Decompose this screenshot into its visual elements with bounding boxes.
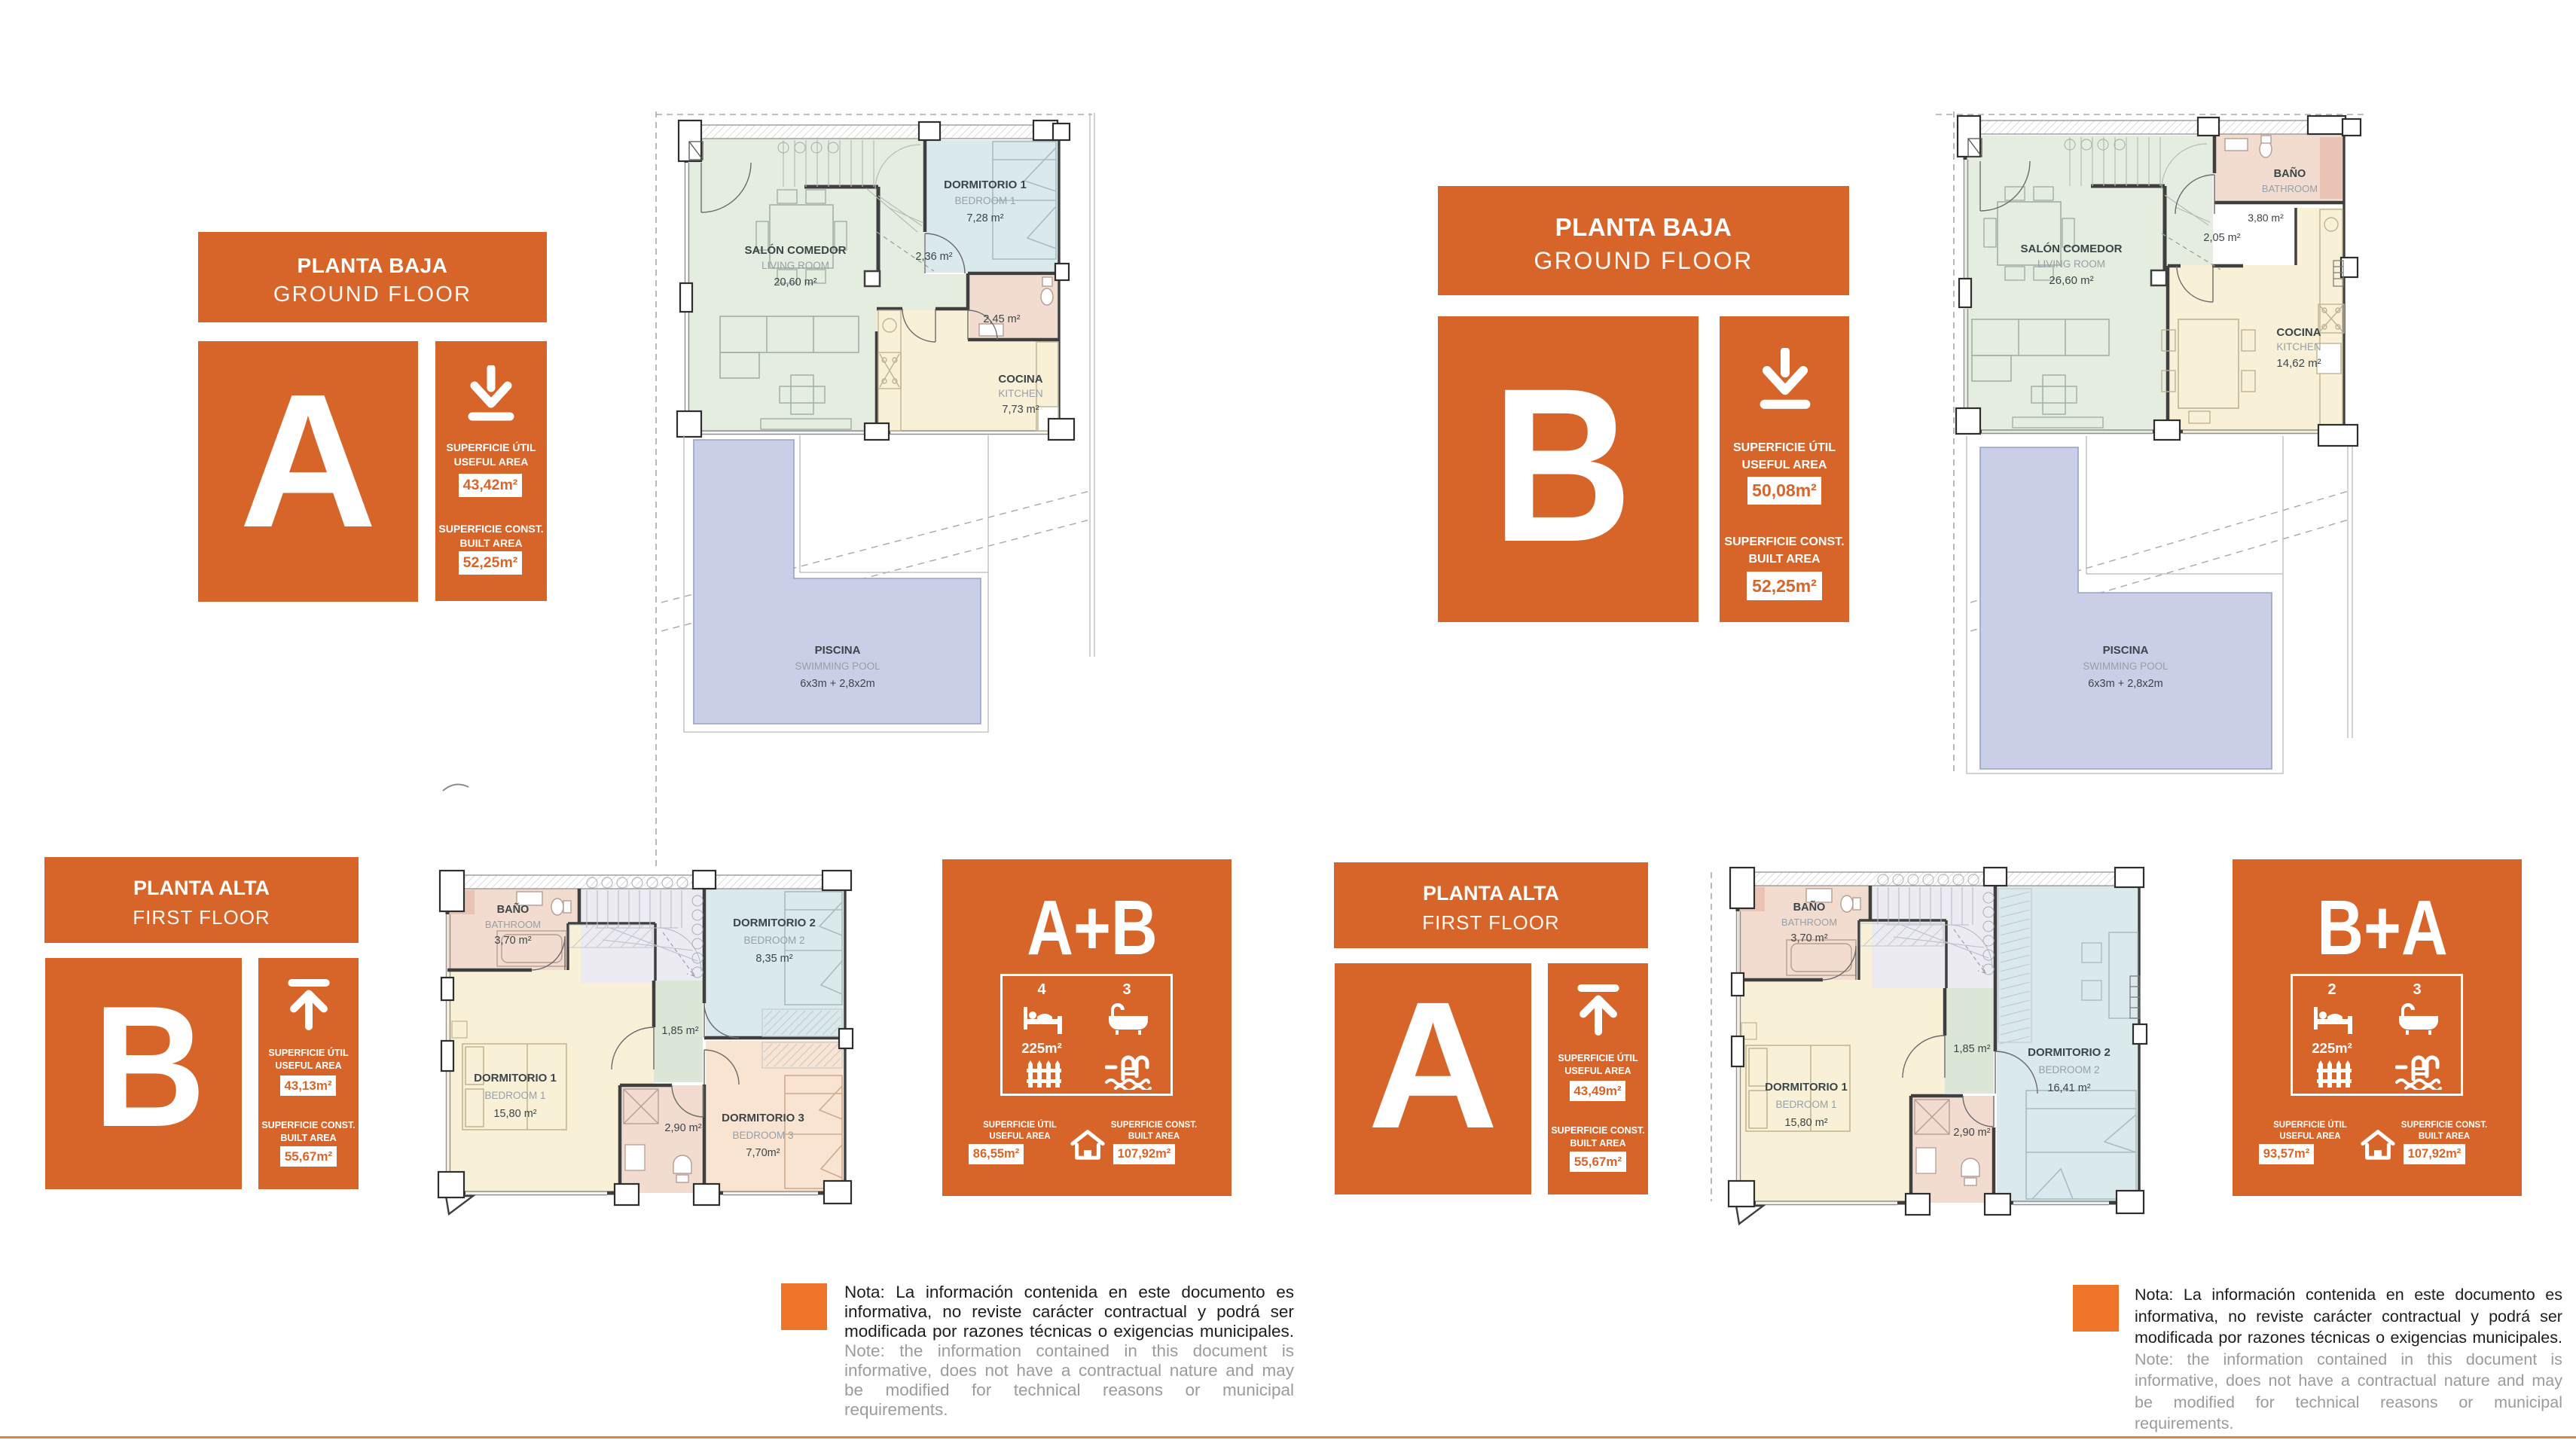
svg-text:KITCHEN: KITCHEN <box>998 388 1042 399</box>
svg-text:1,85 m²: 1,85 m² <box>661 1025 698 1037</box>
svg-text:PISCINA: PISCINA <box>815 644 861 657</box>
svg-text:7,70m²: 7,70m² <box>746 1147 780 1159</box>
svg-text:SWIMMING POOL: SWIMMING POOL <box>795 661 881 672</box>
svg-text:26,60 m²: 26,60 m² <box>2049 274 2093 287</box>
svg-text:LIVING ROOM: LIVING ROOM <box>762 260 829 271</box>
svg-text:20,60 m²: 20,60 m² <box>774 276 816 288</box>
svg-text:BEDROOM 1: BEDROOM 1 <box>1775 1099 1836 1110</box>
svg-text:2,90 m²: 2,90 m² <box>1953 1127 1990 1139</box>
svg-text:BEDROOM 1: BEDROOM 1 <box>954 195 1015 206</box>
svg-text:SALÓN COMEDOR: SALÓN COMEDOR <box>2021 242 2123 255</box>
svg-text:14,62 m²: 14,62 m² <box>2276 357 2321 370</box>
svg-text:15,80 m²: 15,80 m² <box>1784 1117 1827 1129</box>
svg-text:COCINA: COCINA <box>998 373 1042 386</box>
svg-text:BEDROOM 3: BEDROOM 3 <box>732 1130 793 1141</box>
svg-text:7,73 m²: 7,73 m² <box>1002 404 1039 416</box>
svg-text:2,36 m²: 2,36 m² <box>915 251 952 263</box>
svg-text:COCINA: COCINA <box>2276 326 2321 339</box>
svg-text:DORMITORIO 1: DORMITORIO 1 <box>944 178 1027 191</box>
svg-text:3,70 m²: 3,70 m² <box>1790 932 1827 944</box>
svg-text:DORMITORIO 2: DORMITORIO 2 <box>733 917 816 929</box>
svg-text:8,35 m²: 8,35 m² <box>755 953 792 965</box>
svg-text:16,41 m²: 16,41 m² <box>2047 1082 2090 1094</box>
svg-text:BEDROOM 2: BEDROOM 2 <box>2038 1064 2099 1075</box>
svg-text:SALÓN COMEDOR: SALÓN COMEDOR <box>745 243 847 257</box>
svg-text:BEDROOM 2: BEDROOM 2 <box>743 935 804 946</box>
svg-text:BATHROOM: BATHROOM <box>1781 917 1837 928</box>
svg-text:2,05 m²: 2,05 m² <box>2203 232 2240 244</box>
svg-text:DORMITORIO 1: DORMITORIO 1 <box>474 1072 557 1085</box>
svg-text:2,45 m²: 2,45 m² <box>983 313 1020 325</box>
svg-text:KITCHEN: KITCHEN <box>2276 341 2321 352</box>
svg-text:PISCINA: PISCINA <box>2103 644 2149 657</box>
svg-text:6x3m + 2,8x2m: 6x3m + 2,8x2m <box>2088 678 2163 690</box>
svg-text:3,70 m²: 3,70 m² <box>494 935 531 947</box>
svg-text:BEDROOM 1: BEDROOM 1 <box>484 1090 545 1101</box>
svg-text:15,80 m²: 15,80 m² <box>493 1108 536 1120</box>
svg-text:BATHROOM: BATHROOM <box>2262 183 2318 194</box>
svg-text:1,85 m²: 1,85 m² <box>1953 1043 1990 1055</box>
svg-text:LIVING ROOM: LIVING ROOM <box>2037 258 2105 270</box>
svg-text:2,90 m²: 2,90 m² <box>664 1122 701 1134</box>
svg-text:SWIMMING POOL: SWIMMING POOL <box>2083 661 2169 672</box>
svg-text:DORMITORIO 3: DORMITORIO 3 <box>722 1112 804 1124</box>
svg-text:BAÑO: BAÑO <box>2274 166 2306 180</box>
svg-text:DORMITORIO 2: DORMITORIO 2 <box>2028 1046 2111 1059</box>
svg-text:6x3m + 2,8x2m: 6x3m + 2,8x2m <box>800 678 875 690</box>
svg-text:DORMITORIO 1: DORMITORIO 1 <box>1765 1081 1848 1094</box>
svg-text:3,80 m²: 3,80 m² <box>2248 212 2284 224</box>
svg-text:BAÑO: BAÑO <box>1793 900 1826 914</box>
svg-text:BAÑO: BAÑO <box>497 902 530 916</box>
svg-text:7,28 m²: 7,28 m² <box>966 212 1003 224</box>
svg-text:BATHROOM: BATHROOM <box>485 919 541 930</box>
